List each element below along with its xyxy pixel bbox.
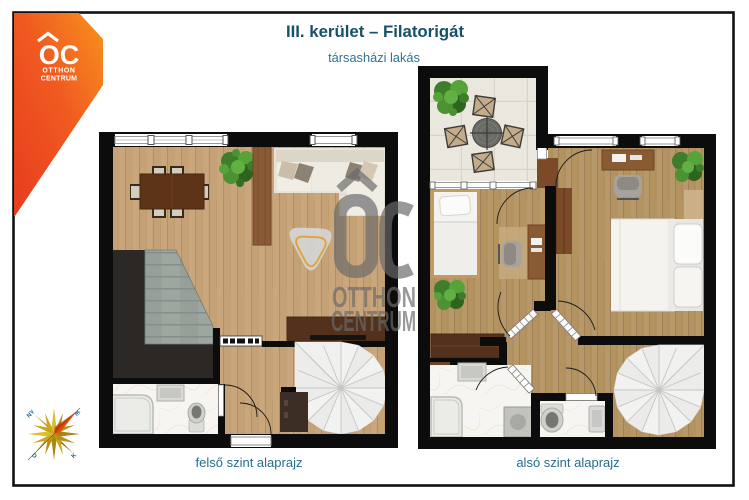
svg-text:É: É	[73, 409, 81, 417]
svg-text:OTTHON: OTTHON	[42, 68, 75, 75]
svg-text:társasházi lakás: társasházi lakás	[328, 50, 420, 65]
svg-text:D: D	[30, 453, 38, 461]
svg-text:OC: OC	[39, 40, 80, 70]
svg-text:CENTRUM: CENTRUM	[331, 306, 416, 338]
svg-text:III. kerület – Filatorigát: III. kerület – Filatorigát	[286, 22, 465, 41]
svg-text:K: K	[71, 452, 79, 460]
svg-text:felső szint alaprajz: felső szint alaprajz	[196, 455, 303, 470]
svg-text:alsó szint alaprajz: alsó szint alaprajz	[516, 455, 619, 470]
svg-text:CENTRUM: CENTRUM	[41, 76, 77, 83]
svg-text:NY: NY	[26, 409, 36, 419]
